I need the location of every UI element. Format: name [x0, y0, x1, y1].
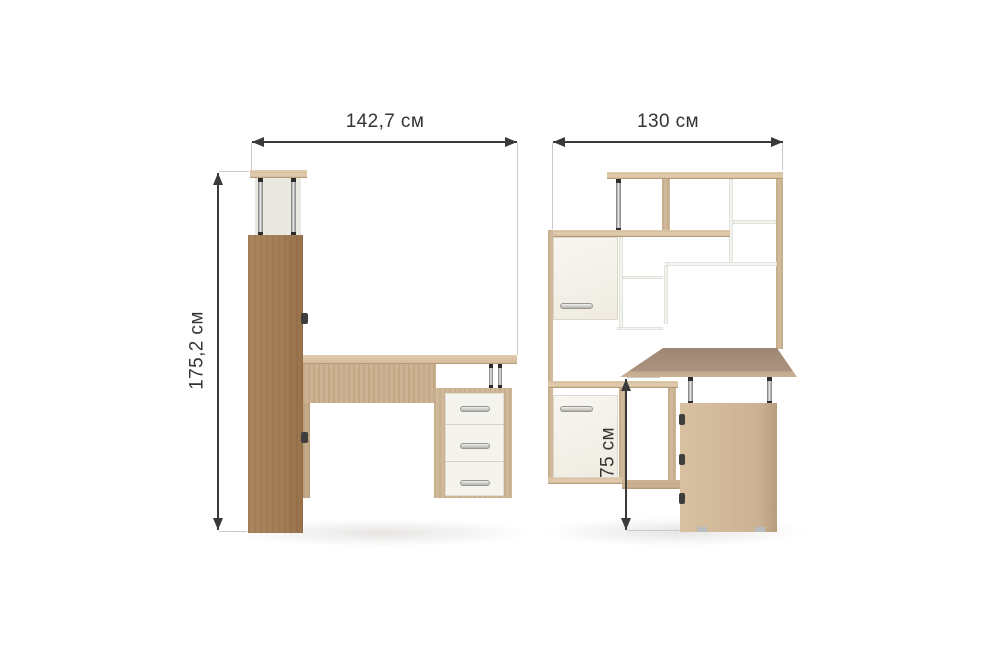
extension-tick-height-top [219, 171, 249, 172]
front-view-top-post [616, 179, 621, 232]
front-view-right-side-panel [776, 179, 783, 349]
side-view-panel-knob-upper [301, 313, 308, 324]
front-view-white-divider-mid [619, 237, 623, 330]
extension-tick-desk-height-bottom [627, 530, 679, 531]
front-view-desk-leg-right [767, 377, 772, 405]
front-view-white-shelf-long [665, 262, 777, 266]
height-label: 175,2 см [187, 301, 208, 401]
front-view-second-shelf [548, 230, 730, 237]
side-view-drawer-handle-2 [460, 443, 490, 449]
side-view-front-post [258, 178, 263, 236]
front-view-pedestal-hinge-1 [679, 414, 685, 425]
extension-line-front-width-right [782, 143, 783, 170]
front-view-pedestal-foot-left [697, 527, 707, 532]
dimension-line-height [217, 173, 219, 530]
front-view-top-board [607, 172, 783, 179]
front-view-desk-leg-left [688, 377, 693, 405]
side-view-drawer-divider-2 [445, 461, 504, 462]
side-view-tall-side-panel [248, 235, 303, 533]
front-view-lower-door-handle [560, 406, 593, 412]
side-view-drawer-divider-1 [445, 424, 504, 425]
dimension-line-side-width [252, 141, 517, 143]
front-view-white-shelf-small-1 [623, 276, 663, 279]
arrowhead-front-width-right [771, 137, 783, 147]
arrowhead-side-width-left [252, 137, 264, 147]
extension-tick-height-bottom [219, 531, 247, 532]
front-view-pedestal-hinge-3 [679, 493, 685, 504]
front-width-label: 130 см [578, 110, 758, 134]
side-view-panel-knob-lower [301, 432, 308, 443]
front-view-upper-door-handle [560, 303, 593, 309]
desk-height-label: 75 см [598, 403, 619, 503]
front-view-pedestal-foot-right [755, 527, 765, 532]
front-view-white-shelf-small-2 [617, 327, 663, 330]
side-view-rear-post [291, 178, 296, 236]
front-view-bottom-shelf-mid [622, 480, 681, 489]
extension-tick-desk-height-top [627, 377, 660, 378]
extension-line-side-width-left [251, 143, 252, 171]
side-view-drawer-handle-3 [460, 480, 490, 486]
arrowhead-desk-height-top [621, 379, 631, 391]
arrowhead-height-bottom [213, 518, 223, 530]
arrowhead-desk-height-bottom [621, 518, 631, 530]
front-view-pedestal-hinge-2 [679, 454, 685, 465]
arrowhead-height-top [213, 173, 223, 185]
arrowhead-front-width-left [553, 137, 565, 147]
side-view-top-shelf-board [250, 170, 307, 178]
extension-line-front-width-left [552, 143, 553, 229]
side-view-desk-support-front [489, 364, 493, 389]
extension-line-side-width-right [517, 143, 518, 355]
side-width-label: 142,7 см [290, 110, 480, 134]
front-view-desk-top [620, 348, 797, 377]
front-view-desk-level-shelf [548, 381, 678, 388]
side-view-drawer-handle-1 [460, 406, 490, 412]
front-view-upper-wood-divider [662, 179, 670, 232]
front-view-pedestal-panel [680, 403, 777, 532]
dimension-line-front-width [553, 141, 783, 143]
front-view-lower-wood-divider-2 [668, 388, 676, 484]
furniture-dimension-diagram: 142,7 см 175,2 см 130 см 75 см [0, 0, 997, 660]
arrowhead-side-width-right [505, 137, 517, 147]
side-view-desk-top [303, 355, 517, 364]
front-view-white-divider-center [664, 266, 668, 324]
side-view-desk-support-rear [498, 364, 502, 389]
front-view-white-shelf-upper-right [733, 220, 776, 224]
side-view-desk-apron [303, 364, 436, 403]
dimension-line-desk-height [625, 379, 627, 530]
